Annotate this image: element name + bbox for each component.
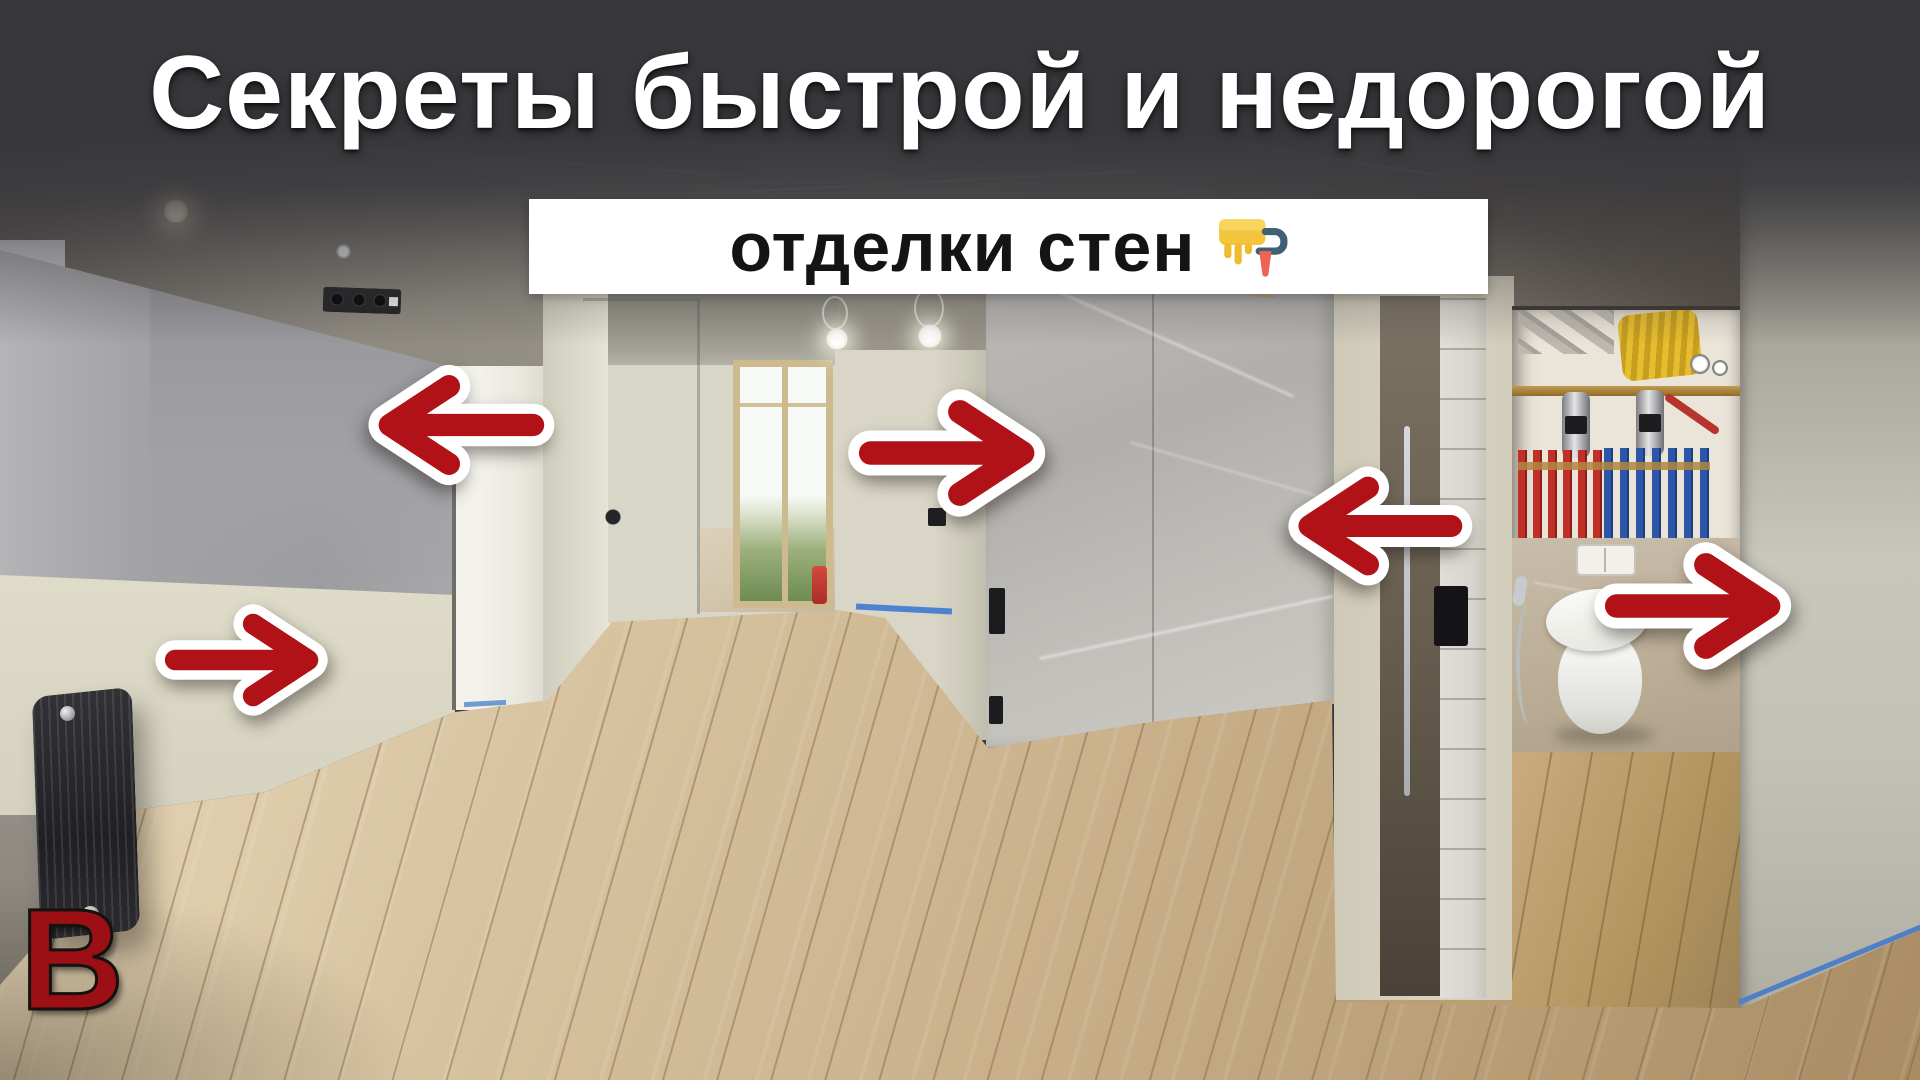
arrow-right-icon — [1602, 548, 1798, 664]
marble-vein — [1039, 595, 1333, 660]
subtitle-banner: отделки стен — [529, 199, 1488, 294]
water-filter — [1562, 392, 1590, 458]
brass-pipe — [1512, 386, 1740, 396]
water-filter — [1636, 390, 1664, 456]
arrow-left-icon — [362, 372, 547, 478]
manifold-brass-band — [1518, 462, 1710, 470]
arrow-right-icon — [856, 396, 1052, 510]
wall-socket — [928, 508, 946, 526]
panel-seam — [1152, 276, 1154, 748]
pressure-gauge — [1690, 354, 1710, 374]
door-leaf — [583, 298, 700, 614]
arrow-left-icon — [1282, 468, 1465, 584]
radiator-valve — [60, 706, 75, 721]
fire-extinguisher — [812, 566, 827, 604]
shower-hose — [1516, 602, 1544, 724]
aerated-block-wall — [1440, 298, 1486, 998]
thumbnail: Секреты быстрой и недорогой отделки стен… — [0, 0, 1920, 1080]
red-hose — [1663, 392, 1720, 435]
wall-socket — [989, 588, 1005, 634]
wall-control-panel — [1434, 586, 1468, 646]
bathroom-floor — [1512, 752, 1740, 1018]
watermark-letter: В — [20, 888, 124, 1032]
paint-roller-icon — [1214, 210, 1288, 284]
arrow-right-icon — [150, 612, 346, 708]
subtitle-text: отделки стен — [729, 207, 1195, 287]
pocket-door-recess — [1380, 296, 1440, 996]
page-title: Секреты быстрой и недорогой — [0, 28, 1920, 158]
corridor-wall — [1334, 276, 1514, 1016]
pressure-gauge — [1712, 360, 1728, 376]
wall-socket — [989, 696, 1003, 724]
